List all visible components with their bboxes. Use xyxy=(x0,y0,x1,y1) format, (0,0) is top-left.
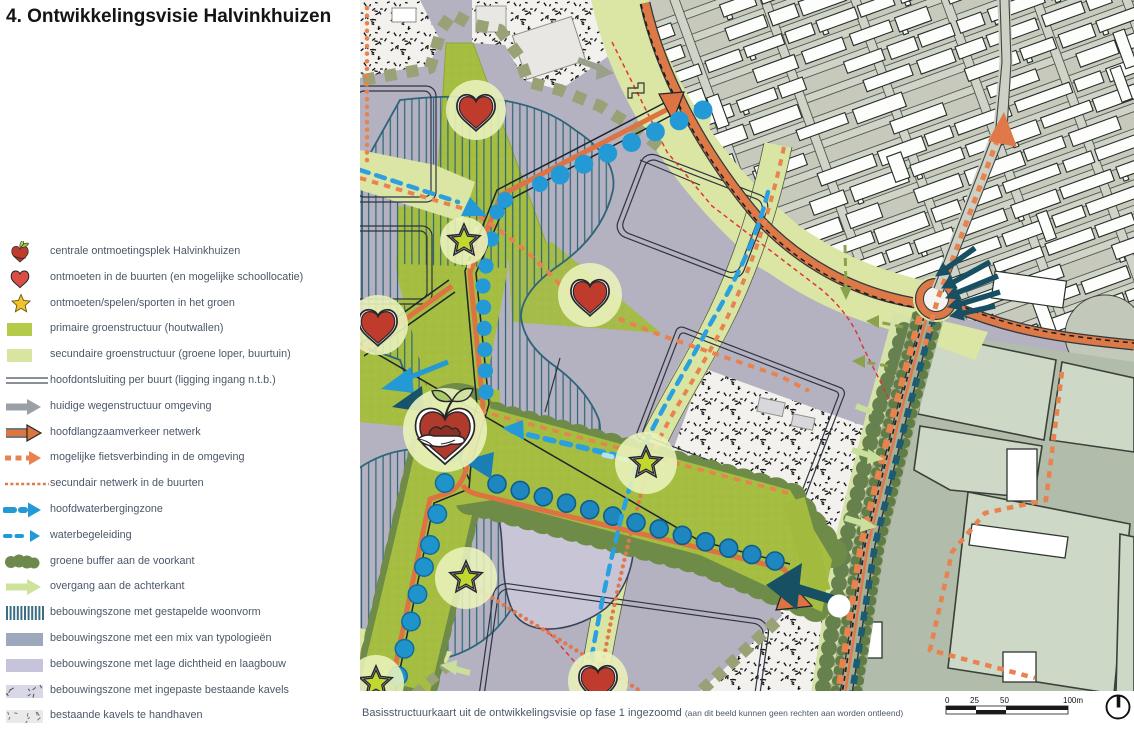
svg-text:25: 25 xyxy=(970,696,979,705)
svg-text:50: 50 xyxy=(1000,696,1009,705)
svg-text:100m: 100m xyxy=(1063,696,1083,705)
svg-text:0: 0 xyxy=(945,696,950,705)
